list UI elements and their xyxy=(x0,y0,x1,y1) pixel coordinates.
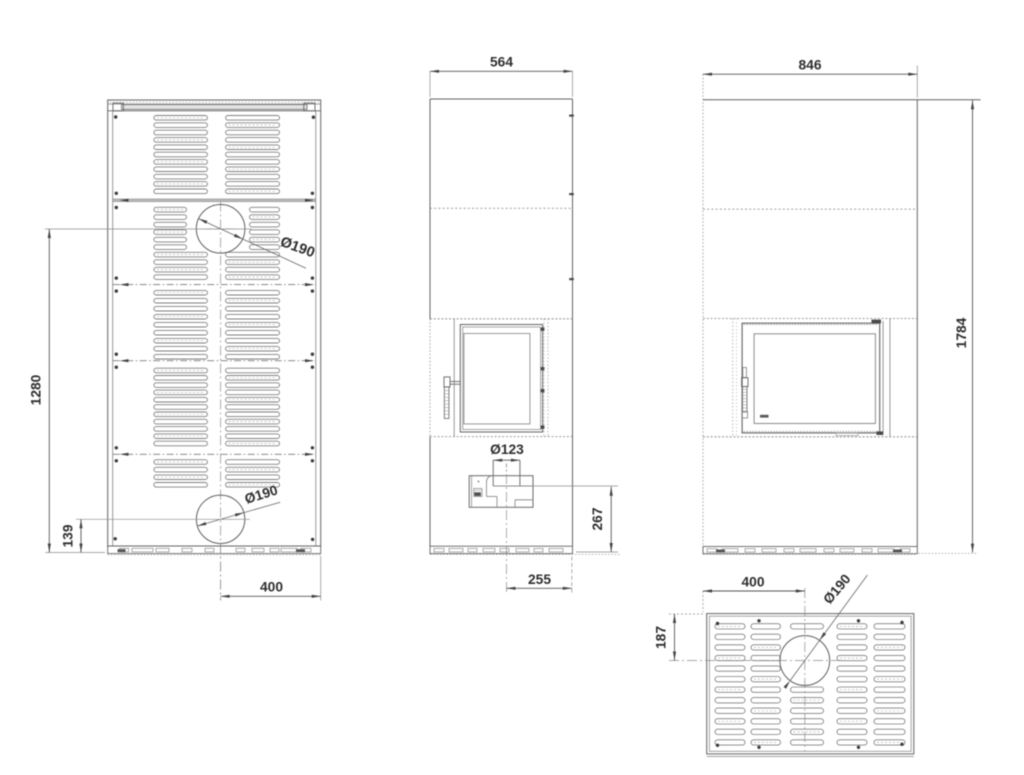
svg-text:1280: 1280 xyxy=(29,374,44,405)
svg-text:139: 139 xyxy=(61,524,76,547)
svg-text:1784: 1784 xyxy=(954,317,969,348)
svg-text:400: 400 xyxy=(260,580,283,595)
svg-text:400: 400 xyxy=(741,575,764,590)
svg-text:564: 564 xyxy=(490,55,513,70)
svg-text:267: 267 xyxy=(590,507,605,530)
svg-text:187: 187 xyxy=(654,626,669,649)
svg-text:Ø123: Ø123 xyxy=(490,442,524,457)
svg-text:255: 255 xyxy=(528,572,551,587)
svg-text:846: 846 xyxy=(798,57,821,72)
